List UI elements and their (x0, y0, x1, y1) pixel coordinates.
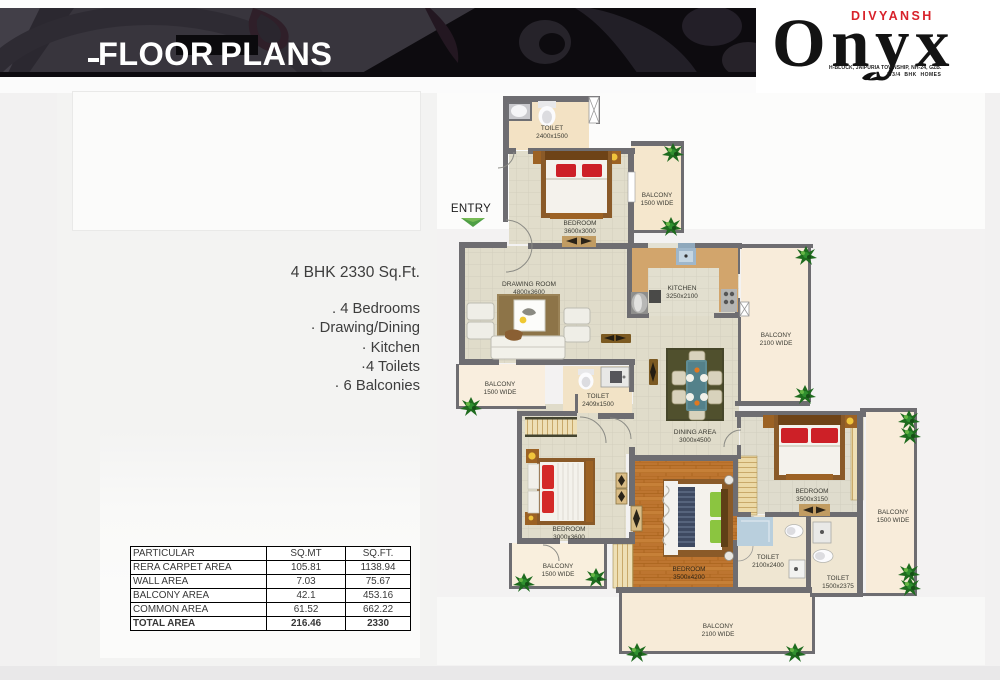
svg-text:BALCONY: BALCONY (543, 563, 574, 570)
svg-text:BALCONY: BALCONY (703, 623, 734, 630)
svg-text:3500x3150: 3500x3150 (796, 496, 828, 503)
svg-text:DRAWING ROOM: DRAWING ROOM (502, 281, 556, 288)
svg-text:BEDROOM: BEDROOM (672, 566, 705, 573)
svg-text:3600x3000: 3600x3000 (564, 228, 596, 235)
svg-text:3000x4500: 3000x4500 (679, 437, 711, 444)
svg-text:2100x2400: 2100x2400 (752, 562, 784, 569)
svg-text:1500 WIDE: 1500 WIDE (641, 200, 674, 207)
svg-text:BALCONY: BALCONY (761, 332, 792, 339)
svg-text:1500 WIDE: 1500 WIDE (877, 517, 910, 524)
svg-text:BALCONY: BALCONY (485, 381, 516, 388)
svg-text:3000x3600: 3000x3600 (553, 534, 585, 541)
svg-text:2400x1500: 2400x1500 (536, 133, 568, 140)
svg-text:2100 WIDE: 2100 WIDE (702, 631, 735, 638)
svg-text:KITCHEN: KITCHEN (668, 285, 697, 292)
svg-text:BALCONY: BALCONY (878, 509, 909, 516)
svg-text:BEDROOM: BEDROOM (795, 488, 828, 495)
svg-text:TOILET: TOILET (827, 575, 849, 582)
svg-text:TOILET: TOILET (541, 125, 563, 132)
svg-text:2100 WIDE: 2100 WIDE (760, 340, 793, 347)
svg-text:3500x4200: 3500x4200 (673, 574, 705, 581)
svg-text:DINING AREA: DINING AREA (674, 429, 717, 436)
svg-text:4800x3600: 4800x3600 (513, 289, 545, 296)
svg-text:BEDROOM: BEDROOM (552, 526, 585, 533)
svg-text:TOILET: TOILET (757, 554, 779, 561)
svg-text:BALCONY: BALCONY (642, 192, 673, 199)
svg-text:1500 WIDE: 1500 WIDE (484, 389, 517, 396)
svg-text:3250x2100: 3250x2100 (666, 293, 698, 300)
svg-text:BEDROOM: BEDROOM (563, 220, 596, 227)
svg-text:1500 WIDE: 1500 WIDE (542, 571, 575, 578)
svg-text:1500x2375: 1500x2375 (822, 583, 854, 590)
svg-text:TOILET: TOILET (587, 393, 609, 400)
svg-text:2409x1500: 2409x1500 (582, 401, 614, 408)
